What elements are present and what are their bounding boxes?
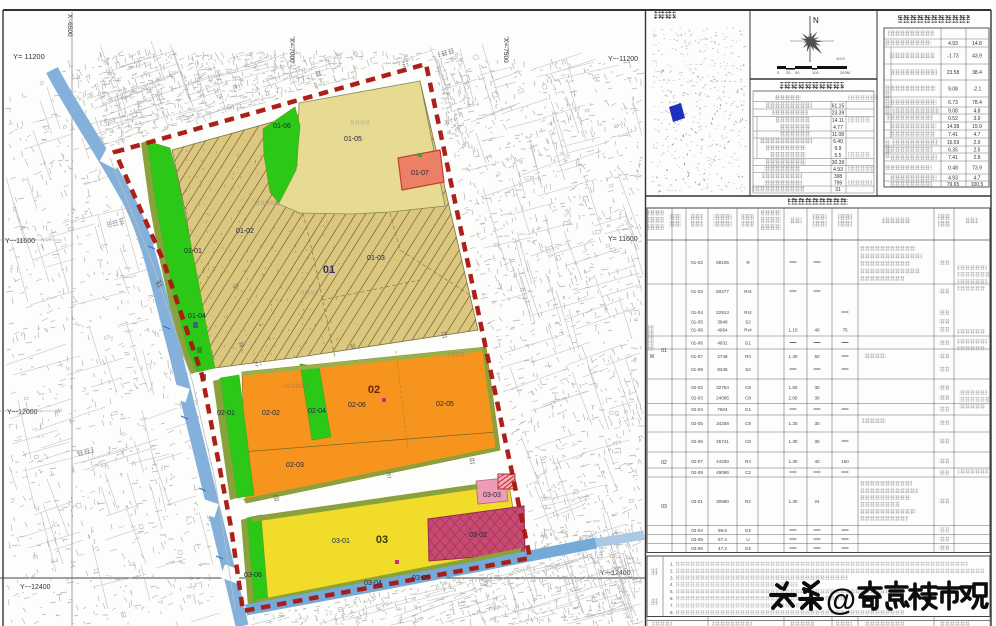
svg-text:02-03: 02-03: [691, 395, 703, 400]
svg-text:03-04: 03-04: [364, 580, 382, 587]
svg-text:7604: 7604: [717, 407, 728, 412]
svg-text:1.: 1.: [670, 562, 674, 567]
svg-text:3.9: 3.9: [974, 116, 981, 122]
svg-text:6.73: 6.73: [948, 100, 958, 106]
svg-text:6.: 6.: [670, 596, 674, 601]
svg-text:02-03: 02-03: [286, 462, 304, 469]
svg-text:03: 03: [661, 504, 667, 510]
svg-text:15.59: 15.59: [947, 140, 960, 146]
svg-text:59105: 59105: [716, 260, 729, 265]
svg-text:4.7: 4.7: [974, 176, 981, 182]
svg-text:23.58: 23.58: [947, 70, 960, 76]
svg-text:4.93: 4.93: [948, 41, 958, 47]
svg-text:Rr4: Rr4: [744, 289, 752, 294]
svg-text:40: 40: [814, 327, 820, 332]
svg-text:50: 50: [814, 354, 820, 359]
svg-text:01-02: 01-02: [691, 260, 703, 265]
svg-text:R2: R2: [745, 499, 751, 504]
svg-text:Y= 11200: Y= 11200: [13, 52, 45, 61]
svg-text:N: N: [813, 16, 819, 25]
svg-text:59.6: 59.6: [718, 528, 727, 533]
svg-text:5.: 5.: [670, 589, 674, 594]
svg-text:01-02: 01-02: [236, 228, 254, 235]
svg-text:4.93: 4.93: [833, 167, 843, 173]
svg-text:43.9: 43.9: [972, 54, 982, 60]
svg-text:03-01: 03-01: [691, 499, 703, 504]
svg-text:1.50: 1.50: [789, 385, 798, 390]
svg-text:1.40: 1.40: [789, 354, 798, 359]
svg-text:1.30: 1.30: [789, 421, 798, 426]
svg-text:6.40: 6.40: [833, 139, 843, 145]
svg-text:150: 150: [841, 459, 849, 464]
svg-text:03: 03: [376, 534, 388, 546]
svg-text:49096: 49096: [716, 470, 729, 475]
svg-text:3948: 3948: [717, 319, 728, 324]
svg-text:38.4: 38.4: [972, 70, 982, 76]
svg-text:8.: 8.: [670, 610, 674, 615]
svg-text:03-06: 03-06: [244, 572, 262, 579]
svg-text:31: 31: [835, 187, 841, 193]
svg-text:2.9: 2.9: [974, 140, 981, 146]
svg-text:25: 25: [786, 70, 791, 75]
svg-text:6.35: 6.35: [948, 148, 958, 154]
svg-text:X~6500: X~6500: [66, 14, 73, 37]
svg-text:02-06: 02-06: [691, 439, 703, 444]
svg-text:@: @: [826, 582, 856, 617]
svg-text:1.10: 1.10: [789, 327, 798, 332]
svg-text:47.2: 47.2: [718, 546, 727, 551]
svg-text:03-03: 03-03: [483, 492, 501, 499]
svg-text:73.9: 73.9: [972, 166, 982, 172]
svg-text:4.8: 4.8: [974, 109, 981, 115]
svg-text:30.39: 30.39: [832, 160, 845, 166]
svg-text:398: 398: [834, 174, 843, 180]
svg-text:0: 0: [777, 70, 780, 75]
svg-text:R4: R4: [745, 459, 751, 464]
svg-text:2.05: 2.05: [789, 395, 798, 400]
svg-text:79.65: 79.65: [947, 182, 960, 188]
svg-text:X=-7000: X=-7000: [288, 38, 295, 63]
svg-text:25741: 25741: [716, 439, 729, 444]
svg-text:C8: C8: [745, 385, 751, 390]
svg-text:01-04: 01-04: [691, 310, 703, 315]
svg-text:-2.1: -2.1: [973, 87, 982, 93]
svg-text:2748: 2748: [717, 354, 728, 359]
svg-text:02-07: 02-07: [691, 459, 703, 464]
svg-text:Rr4: Rr4: [744, 327, 752, 332]
svg-text:3.: 3.: [670, 575, 674, 580]
svg-text:75: 75: [842, 327, 848, 332]
svg-text:1.30: 1.30: [789, 499, 798, 504]
svg-text:14.8: 14.8: [972, 41, 982, 47]
svg-text:23.39: 23.39: [832, 111, 845, 117]
svg-text:200M: 200M: [840, 70, 850, 75]
svg-text:C8: C8: [745, 439, 751, 444]
svg-text:01-06: 01-06: [691, 327, 703, 332]
svg-text:S2: S2: [745, 367, 751, 372]
svg-text:24065: 24065: [716, 395, 729, 400]
svg-text:02-08: 02-08: [691, 470, 703, 475]
svg-text:799: 799: [834, 181, 843, 187]
svg-text:01-07: 01-07: [411, 170, 429, 177]
svg-text:2.5: 2.5: [974, 148, 981, 154]
svg-text:02-06: 02-06: [348, 402, 366, 409]
svg-text:34258: 34258: [716, 421, 729, 426]
svg-text:U: U: [746, 537, 749, 542]
svg-text:9.08: 9.08: [948, 87, 958, 93]
svg-text:G2: G2: [745, 546, 752, 551]
svg-text:03-02: 03-02: [469, 532, 487, 539]
svg-text:01-05: 01-05: [344, 136, 362, 143]
svg-text:Rr4: Rr4: [744, 310, 752, 315]
svg-text:0.52: 0.52: [948, 116, 958, 122]
svg-text:30: 30: [814, 421, 820, 426]
svg-text:24: 24: [814, 499, 820, 504]
svg-text:32754: 32754: [716, 385, 729, 390]
svg-text:03-05: 03-05: [412, 575, 430, 582]
svg-text:0.48: 0.48: [948, 166, 958, 172]
svg-text:C2: C2: [745, 470, 751, 475]
svg-text:G2: G2: [745, 528, 752, 533]
svg-text:03-04: 03-04: [691, 528, 703, 533]
svg-text:4931: 4931: [717, 340, 728, 345]
svg-text:7.41: 7.41: [948, 132, 958, 138]
svg-text:01-07: 01-07: [691, 354, 703, 359]
svg-text:1.30: 1.30: [789, 459, 798, 464]
svg-text:02-04: 02-04: [691, 407, 703, 412]
svg-text:7.: 7.: [670, 603, 674, 608]
svg-text:14.11: 14.11: [832, 118, 844, 124]
svg-text:02: 02: [661, 460, 667, 466]
svg-text:Y~-11200: Y~-11200: [608, 56, 638, 63]
svg-text:02: 02: [368, 384, 380, 396]
svg-text:11.08: 11.08: [832, 132, 844, 138]
svg-text:50: 50: [795, 70, 800, 75]
svg-text:02-01: 02-01: [217, 410, 235, 417]
svg-text:-1.73: -1.73: [947, 54, 959, 60]
svg-text:R4: R4: [745, 354, 751, 359]
svg-text:Y~-12400: Y~-12400: [20, 584, 51, 591]
svg-text:01: 01: [661, 348, 667, 354]
svg-text:01-03: 01-03: [691, 289, 703, 294]
svg-text:2.8: 2.8: [974, 155, 981, 161]
svg-text:G1: G1: [745, 340, 752, 345]
svg-text:02-02: 02-02: [691, 385, 703, 390]
svg-text:01-01: 01-01: [184, 248, 202, 255]
svg-text:W: W: [650, 354, 655, 360]
svg-text:4.: 4.: [670, 582, 674, 587]
svg-text:01-06: 01-06: [273, 123, 291, 130]
svg-text:01-03: 01-03: [367, 255, 385, 262]
svg-text:02-05: 02-05: [436, 401, 454, 408]
svg-text:01-06: 01-06: [691, 340, 703, 345]
svg-text:C8: C8: [745, 421, 751, 426]
svg-text:4.7: 4.7: [974, 132, 981, 138]
svg-text:4964: 4964: [717, 327, 728, 332]
svg-text:4.93: 4.93: [948, 176, 958, 182]
svg-text:1.30: 1.30: [789, 439, 798, 444]
svg-text:X=-7500: X=-7500: [502, 38, 509, 63]
svg-text:C8: C8: [745, 395, 751, 400]
svg-text:01-08: 01-08: [691, 367, 703, 372]
svg-text:2.: 2.: [670, 568, 674, 573]
svg-text:100: 100: [812, 70, 819, 75]
svg-text:03-05: 03-05: [691, 537, 703, 542]
svg-text:78.4: 78.4: [972, 100, 982, 106]
svg-text:01-04: 01-04: [188, 313, 206, 320]
svg-text:02-05: 02-05: [691, 421, 703, 426]
svg-text:15.9: 15.9: [972, 124, 982, 130]
svg-text:4.77: 4.77: [833, 125, 843, 131]
svg-text:3M/S: 3M/S: [836, 56, 846, 61]
svg-text:02-04: 02-04: [308, 408, 326, 415]
svg-text:G1: G1: [745, 407, 752, 412]
svg-text:02-02: 02-02: [262, 410, 280, 417]
svg-text:R: R: [746, 260, 750, 265]
svg-text:30: 30: [814, 439, 820, 444]
svg-text:9.08: 9.08: [948, 109, 958, 115]
svg-text:7.41: 7.41: [948, 155, 958, 161]
svg-text:57.4: 57.4: [718, 537, 727, 542]
svg-text:30: 30: [814, 385, 820, 390]
svg-text:22913: 22913: [716, 310, 729, 315]
svg-text:8346: 8346: [717, 367, 728, 372]
svg-text:S2: S2: [745, 319, 751, 324]
svg-text:40: 40: [814, 459, 820, 464]
svg-text:01: 01: [323, 264, 335, 276]
svg-text:9.9: 9.9: [835, 146, 842, 152]
svg-text:30980: 30980: [716, 499, 729, 504]
svg-text:14.38: 14.38: [947, 124, 960, 130]
svg-text:100.5: 100.5: [971, 182, 984, 188]
svg-text:44330: 44330: [716, 459, 729, 464]
svg-text:5.5: 5.5: [835, 153, 842, 159]
svg-text:61.15: 61.15: [832, 104, 845, 110]
svg-text:03-01: 03-01: [332, 538, 350, 545]
svg-text:30: 30: [814, 395, 820, 400]
svg-text:01-05: 01-05: [691, 319, 703, 324]
svg-text:50277: 50277: [716, 289, 729, 294]
svg-text:03-06: 03-06: [691, 546, 703, 551]
